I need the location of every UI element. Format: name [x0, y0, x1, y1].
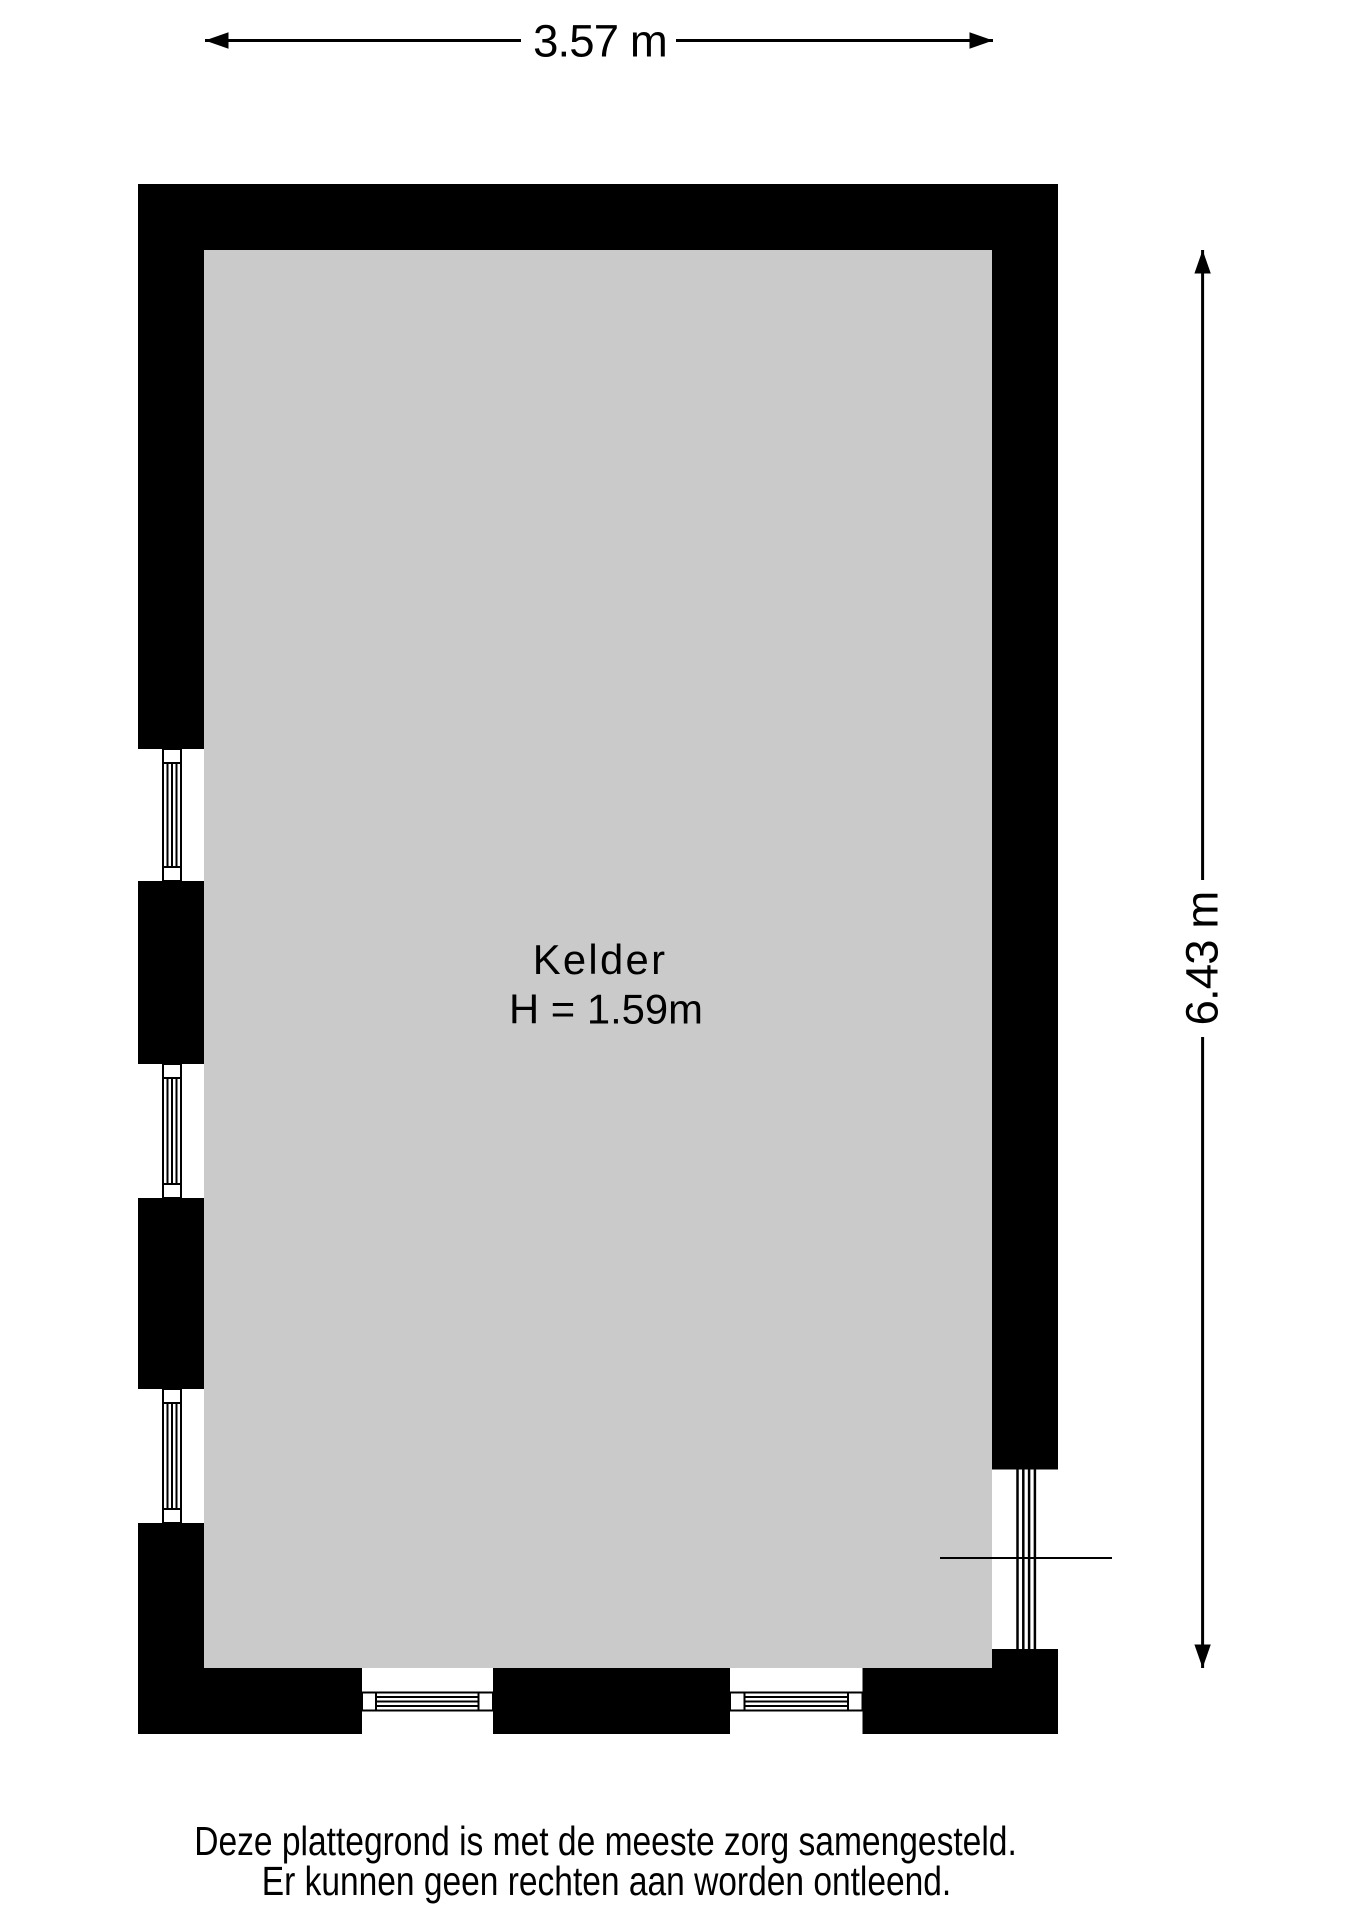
svg-text:Kelder: Kelder	[533, 936, 668, 983]
svg-text:6.43 m: 6.43 m	[1177, 892, 1228, 1026]
svg-text:H = 1.59m: H = 1.59m	[509, 986, 703, 1033]
svg-text:3.57 m: 3.57 m	[533, 16, 667, 67]
svg-text:Er kunnen geen rechten aan wor: Er kunnen geen rechten aan worden ontlee…	[262, 1858, 951, 1904]
svg-text:Deze plattegrond is met de mee: Deze plattegrond is met de meeste zorg s…	[194, 1818, 1017, 1864]
